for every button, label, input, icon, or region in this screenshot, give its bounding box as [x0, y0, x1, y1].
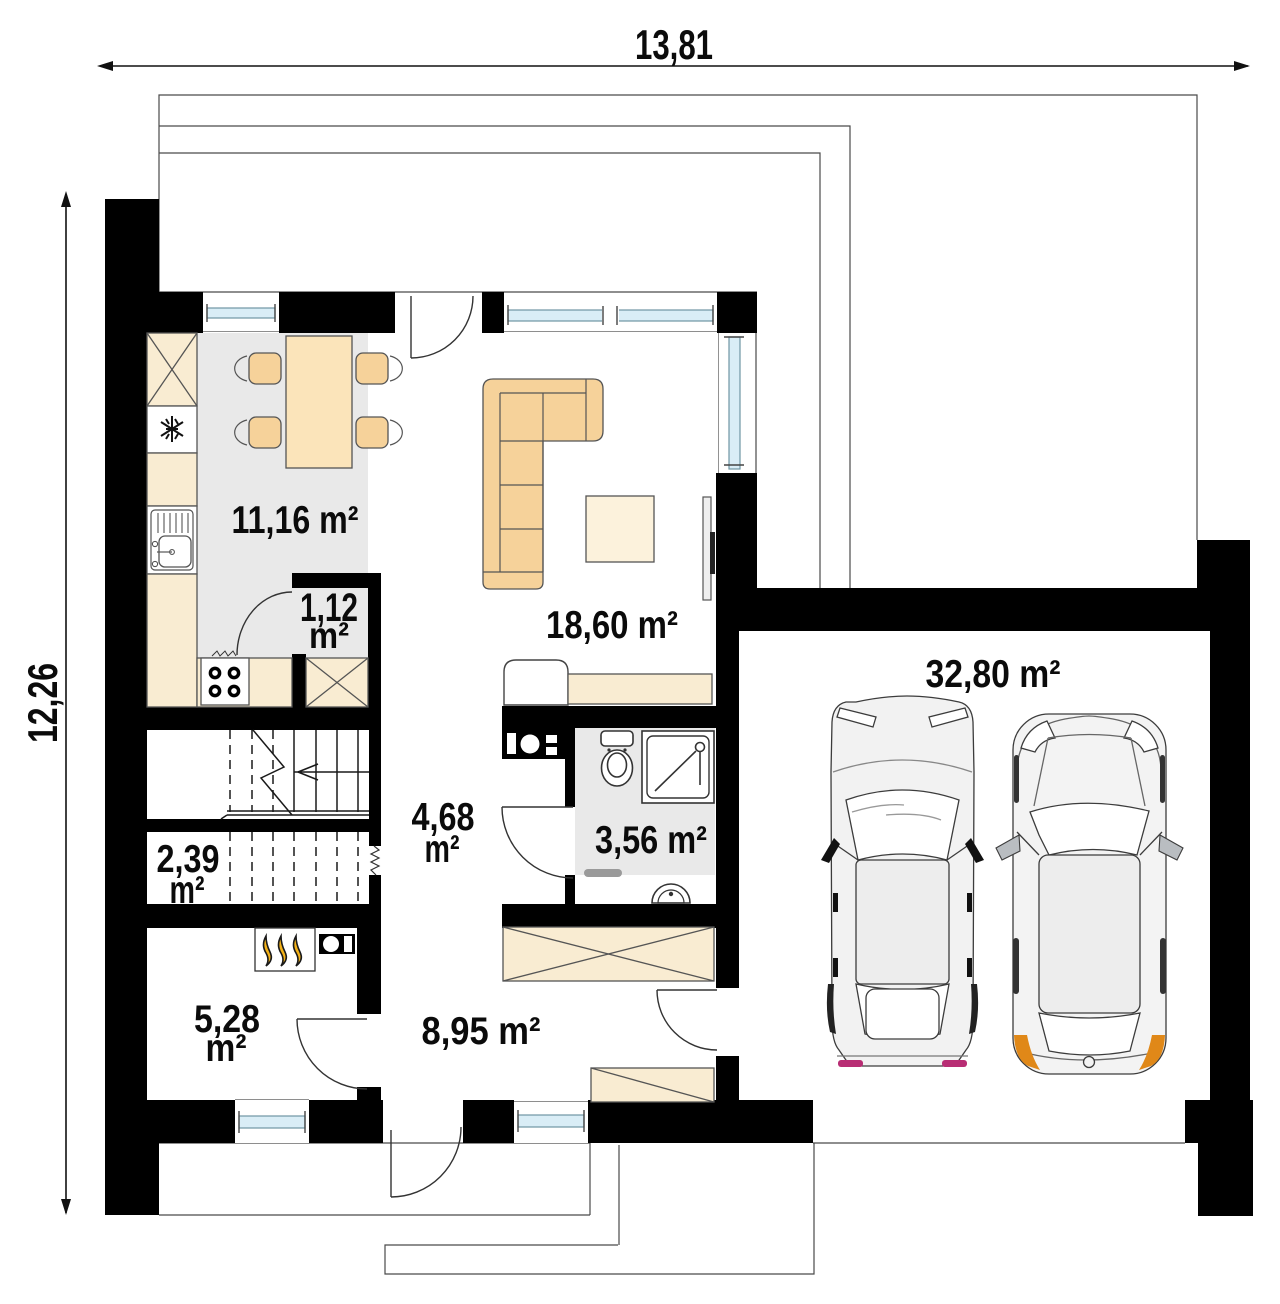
svg-text:m²: m²: [170, 869, 205, 912]
svg-text:3,56 m²: 3,56 m²: [595, 819, 707, 862]
svg-text:32,80 m²: 32,80 m²: [926, 653, 1061, 696]
svg-text:18,60 m²: 18,60 m²: [546, 604, 678, 647]
svg-text:12,26: 12,26: [19, 663, 66, 743]
svg-text:m²: m²: [425, 828, 460, 871]
svg-text:8,95 m²: 8,95 m²: [422, 1010, 541, 1053]
svg-text:11,16 m²: 11,16 m²: [232, 499, 359, 542]
svg-text:m²: m²: [309, 615, 349, 656]
svg-text:13,81: 13,81: [635, 21, 713, 68]
svg-text:m²: m²: [206, 1027, 247, 1070]
